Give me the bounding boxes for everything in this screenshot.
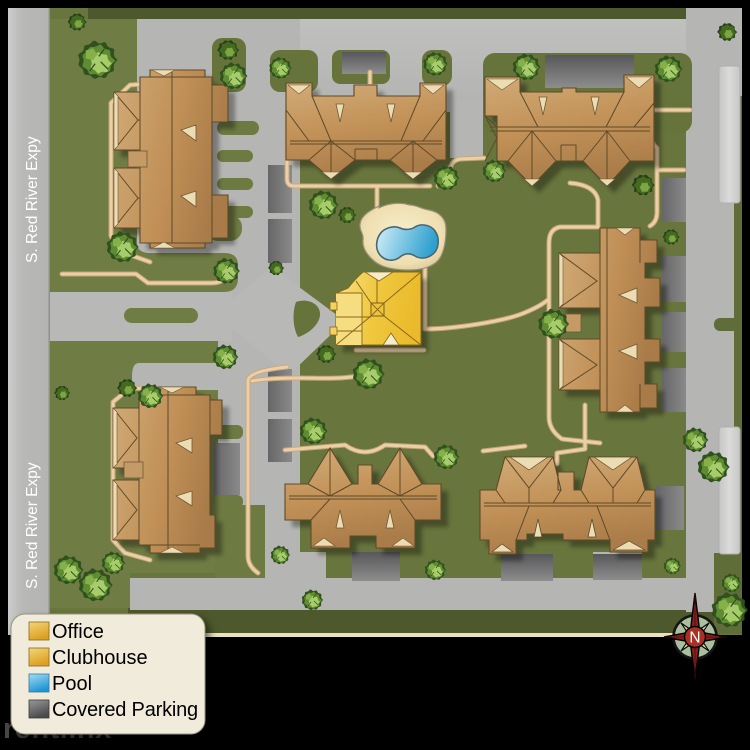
svg-text:Covered Parking: Covered Parking xyxy=(52,699,198,721)
svg-text:S. Red River Expy: S. Red River Expy xyxy=(24,136,41,263)
svg-text:Pool: Pool xyxy=(52,673,92,695)
svg-text:Office: Office xyxy=(52,621,104,643)
svg-text:S. Red River Expy: S. Red River Expy xyxy=(24,462,41,589)
svg-text:N: N xyxy=(689,630,700,647)
svg-text:Clubhouse: Clubhouse xyxy=(52,647,148,669)
